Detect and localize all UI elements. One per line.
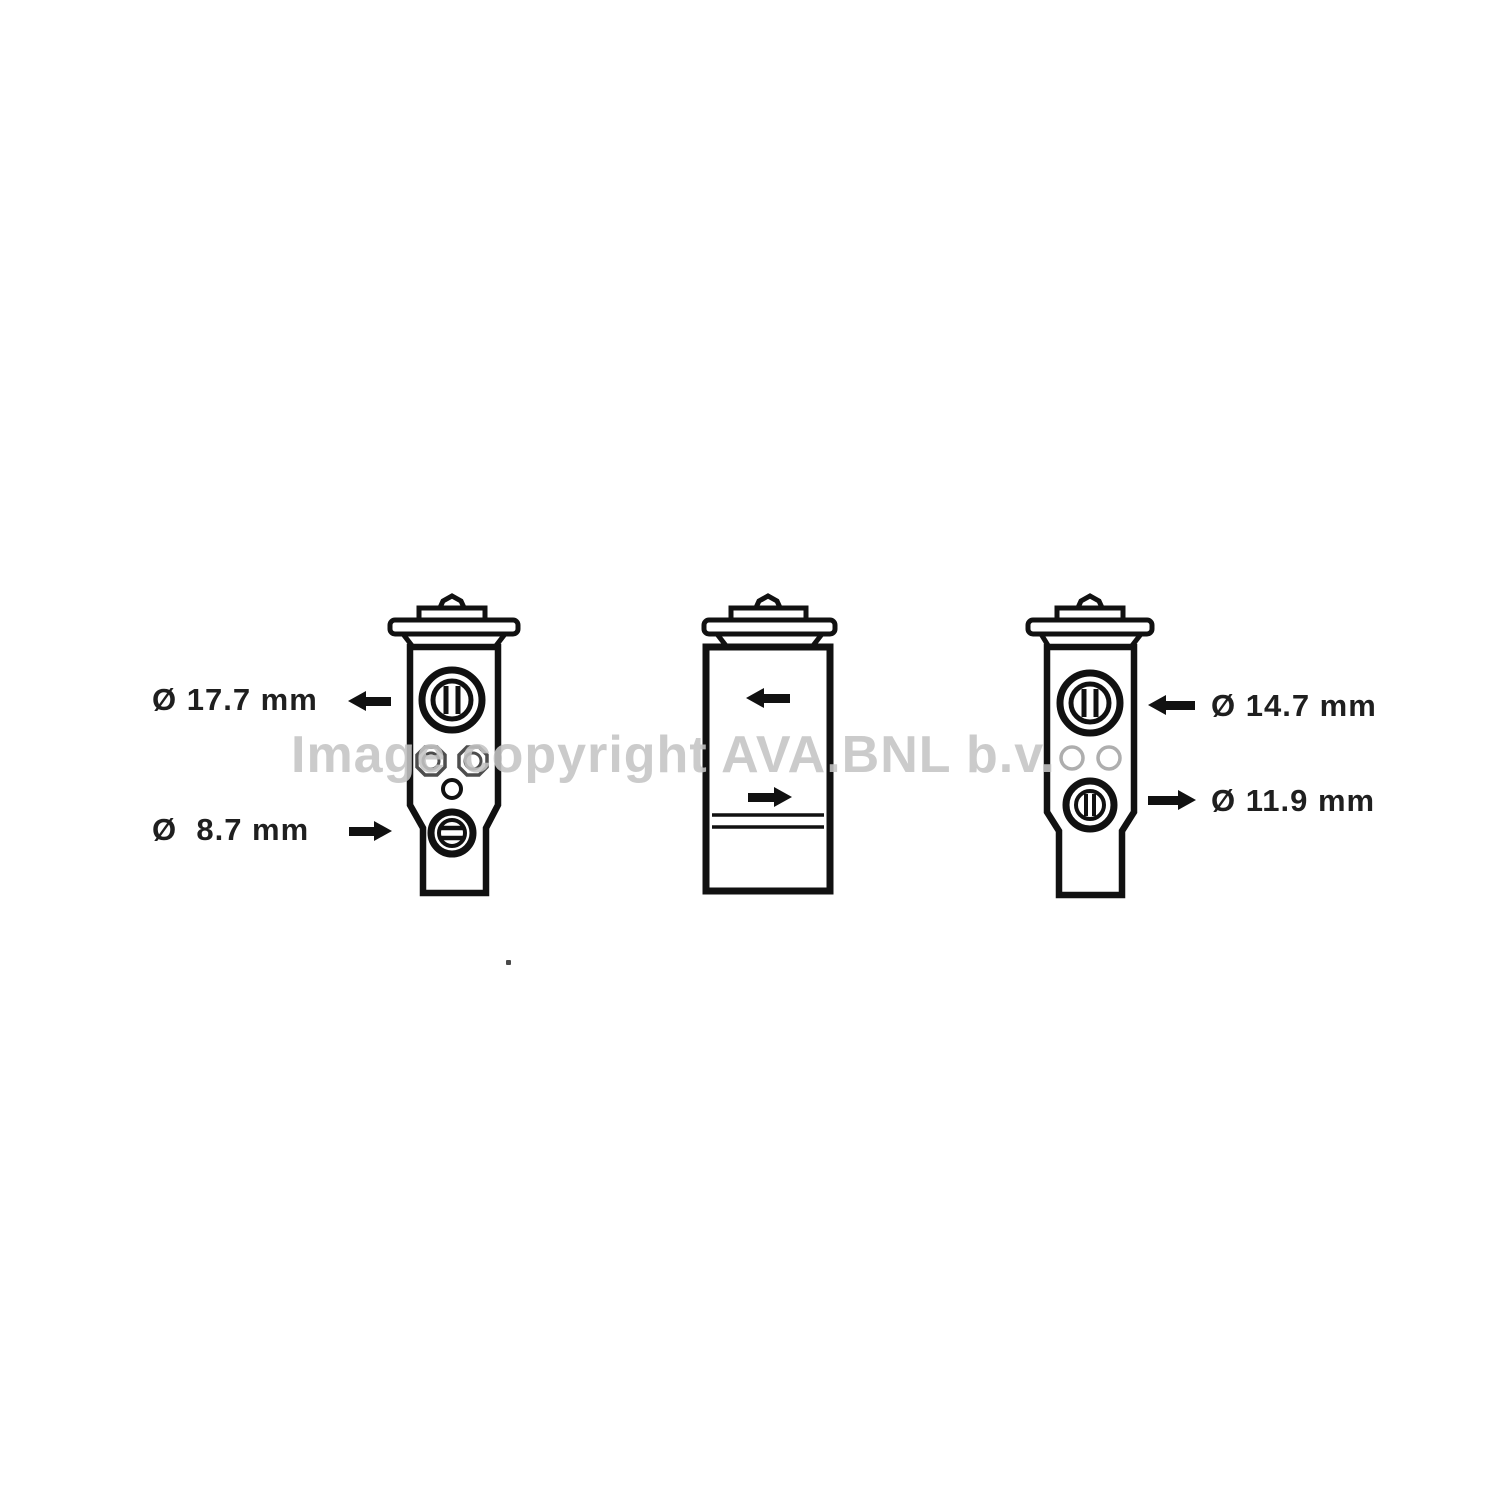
valve-cap-icon [1028, 596, 1152, 647]
dimension-label-17-7: Ø 17.7 mm [152, 682, 318, 718]
valve-cap-icon [390, 596, 518, 647]
arrow-left-icon [348, 691, 391, 711]
dimension-label-8-7: Ø 8.7 mm [152, 812, 309, 848]
valve-cap-icon [704, 596, 835, 647]
dimension-label-14-7: Ø 14.7 mm [1211, 688, 1377, 724]
dust-speck [506, 960, 511, 965]
product-image-canvas: Ø 17.7 mm Ø 8.7 mm Ø 14.7 mm Ø 11.9 mm I… [0, 0, 1500, 1500]
copyright-watermark: Image copyright AVA.BNL b.v. [291, 729, 1056, 781]
arrow-right-icon [1148, 790, 1196, 810]
arrow-right-icon [349, 821, 392, 841]
dimension-label-11-9: Ø 11.9 mm [1211, 783, 1375, 819]
arrow-left-icon [1148, 695, 1195, 715]
